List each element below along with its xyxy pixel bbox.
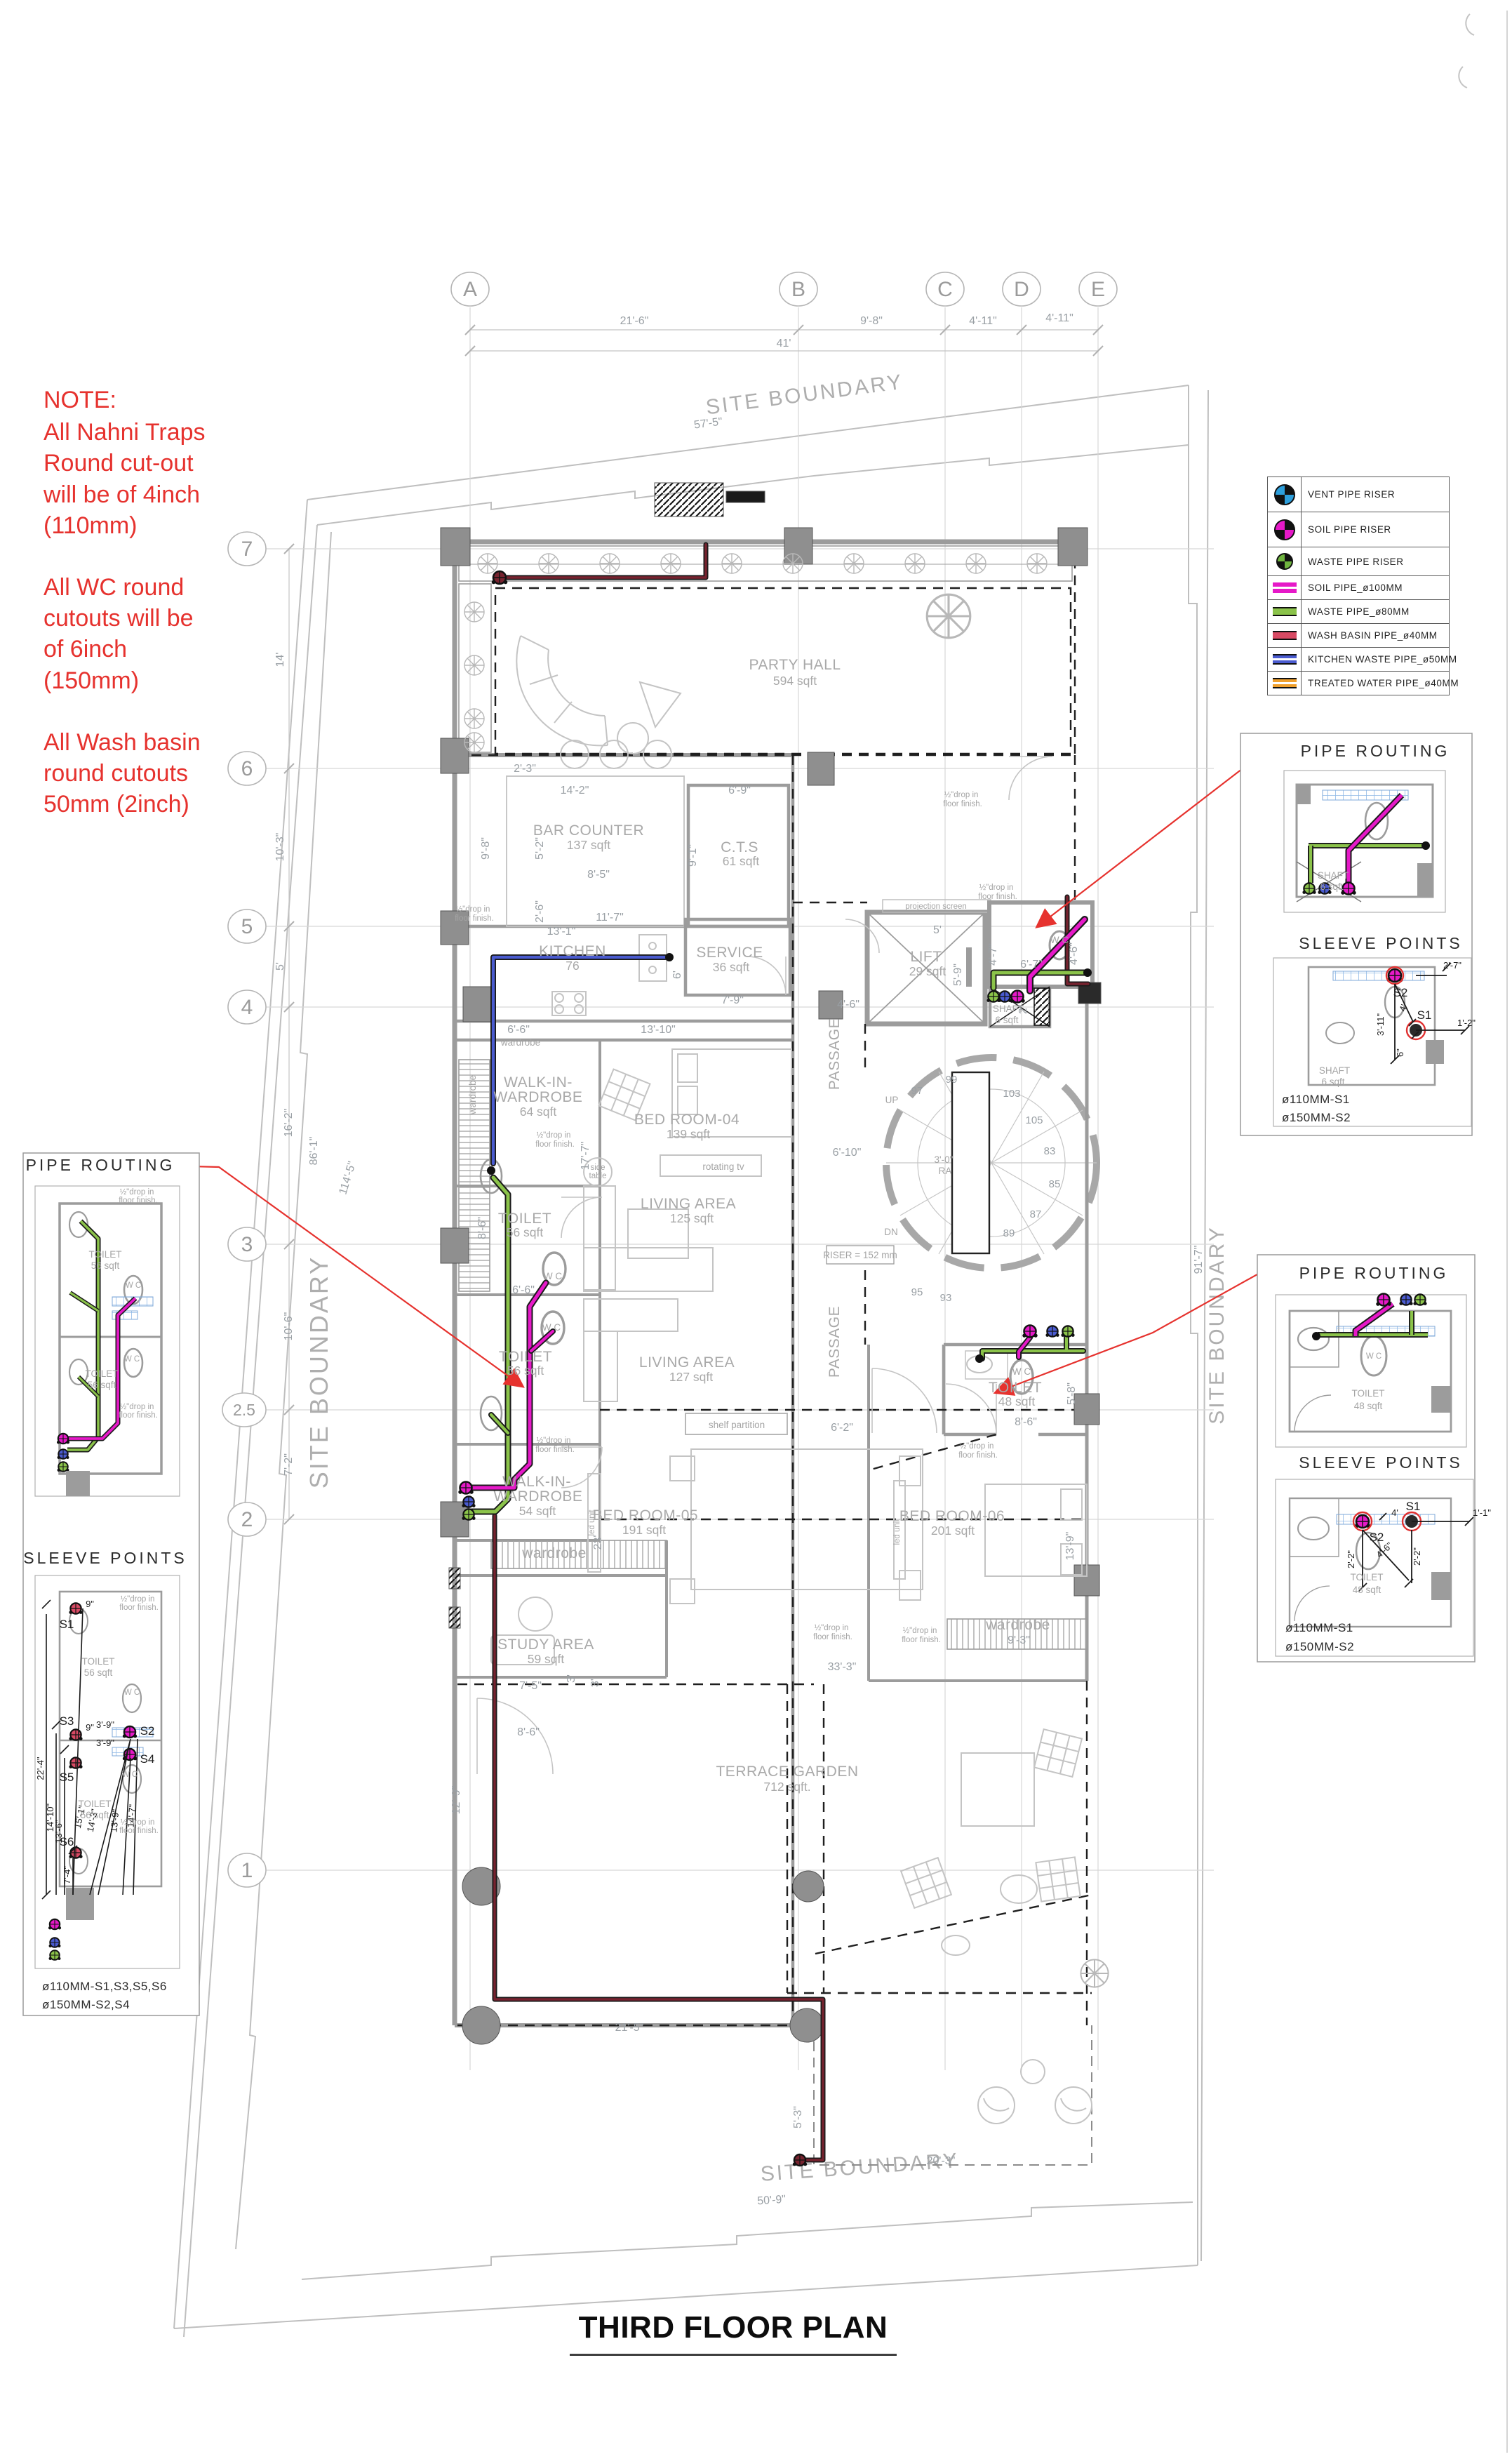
step-number: 85 xyxy=(1049,1178,1061,1190)
room-label: TOILET xyxy=(498,1211,551,1227)
room-label: LIFT xyxy=(910,949,942,965)
stair-up-label: UP xyxy=(885,1095,899,1105)
dim-label: 3'-11" xyxy=(1375,1013,1386,1037)
dim-label: 9'-8" xyxy=(860,315,883,327)
sleeve-size-note: ø110MM-S1 xyxy=(1285,1621,1353,1634)
room-label: TERRACE GARDEN xyxy=(716,1764,858,1780)
legend-row: SOIL PIPE RISER xyxy=(1268,512,1449,547)
detail-right-2: PIPE ROUTING W C TOILET 48 sqft SLEEVE P… xyxy=(1257,1255,1491,1662)
drop-note: ½"drop in xyxy=(537,1131,571,1140)
sleeve-size-note: ø110MM-S1,S3,S5,S6 xyxy=(42,1980,167,1993)
dim-label: 2'-3" xyxy=(514,763,536,775)
room-area: 56 sqft xyxy=(507,1225,544,1239)
dim-label: 2'-7" xyxy=(1443,960,1461,971)
drop-note: floor finish. xyxy=(943,800,982,808)
stair-radius-label: RA xyxy=(939,1166,952,1176)
vent-pipe-riser-icon xyxy=(462,1496,475,1507)
detail-room-label: TOILET xyxy=(88,1249,121,1260)
sleeve-size-note: ø110MM-S1 xyxy=(1282,1093,1350,1106)
dim-label: 5'-3" xyxy=(792,2106,804,2128)
wardrobe-label: wardrobe xyxy=(500,1037,540,1048)
grid-col-label: A xyxy=(463,278,477,301)
room-area: 6 sqft xyxy=(995,1015,1018,1025)
grid-row-label: 2.5 xyxy=(233,1401,255,1419)
legend-label: WASH BASIN PIPE_ø40MM xyxy=(1302,630,1438,641)
dim-label: 5'-2" xyxy=(534,837,546,860)
drop-note: ½"drop in xyxy=(944,791,979,799)
room-label: BED ROOM-06 xyxy=(899,1508,1005,1524)
soil-pipe-riser-icon xyxy=(1274,519,1295,540)
room-label: KITCHEN xyxy=(539,943,606,959)
room-area: 59 sqft xyxy=(528,1652,565,1666)
room-area: 76 xyxy=(566,959,579,973)
room-area: 64 sqft xyxy=(520,1105,557,1119)
site-boundary-left: SITE BOUNDARY xyxy=(305,1255,333,1488)
wardrobe-label: wardrobe xyxy=(985,1617,1050,1633)
kitchen-waste-pipe xyxy=(493,957,665,1164)
legend-label: SOIL PIPE RISER xyxy=(1302,524,1391,535)
drop-note: floor finish. xyxy=(455,914,494,923)
step-number: 95 xyxy=(911,1286,923,1298)
room-label: SERVICE xyxy=(696,945,763,961)
drop-note: ½"drop in xyxy=(120,1403,154,1411)
drop-note: ½"drop in xyxy=(815,1624,849,1632)
step-number: 105 xyxy=(1025,1114,1043,1126)
treated-water-pipe-icon xyxy=(1273,678,1297,688)
dim-label: 13'-6" xyxy=(53,1820,64,1844)
wc-label: W C xyxy=(1012,1366,1031,1377)
wc-label: W C xyxy=(542,1322,561,1333)
step-number: 99 xyxy=(946,1074,958,1086)
room-label: WALK-IN- xyxy=(504,1074,573,1091)
detail-heading: SLEEVE POINTS xyxy=(23,1549,187,1567)
detail-heading: SLEEVE POINTS xyxy=(1299,1453,1463,1472)
sleeve-size-note: ø150MM-S2,S4 xyxy=(42,1998,130,2011)
site-boundary-lines xyxy=(174,11,1507,2453)
grid-col-label: B xyxy=(791,278,805,301)
wardrobe-label: wardrobe xyxy=(467,1075,478,1115)
room-area: 36 sqft xyxy=(713,960,750,974)
dim-label: 5'-8" xyxy=(1066,1382,1078,1405)
floor-plan-drawing: A B C D E 7 6 5 4 3 2.5 2 1 21'-6" 9'-8"… xyxy=(0,0,1512,2459)
dim-label: 9" xyxy=(86,1599,94,1609)
waste-pipes-green xyxy=(471,973,1085,1512)
treated-water-riser-icon xyxy=(793,2154,807,2166)
room-label: BED ROOM-05 xyxy=(593,1507,698,1524)
dim-label: 2'-6" xyxy=(534,900,546,923)
dim-label: 8'-6" xyxy=(476,1217,488,1239)
drop-note: floor finish. xyxy=(958,1451,998,1460)
drop-note: floor finish. xyxy=(119,1197,158,1205)
kitchen-waste-pipe-icon xyxy=(1273,654,1297,665)
detail-left: PIPE ROUTING TOILET 56 sqft TOILET 56 sq… xyxy=(23,1153,199,2015)
dim-label: 6'-10" xyxy=(833,1147,862,1159)
shelf-partition-label: shelf partition xyxy=(709,1420,765,1430)
dim-label: 5' xyxy=(933,924,942,936)
dim-label: 3' xyxy=(589,1679,601,1687)
vent-pipe-riser-icon xyxy=(1045,1326,1059,1337)
dim-label: 13'-1" xyxy=(547,926,576,938)
legend-row: SOIL PIPE_ø100MM xyxy=(1268,575,1449,599)
drop-note: floor finish. xyxy=(119,1604,159,1612)
dim-label: 33'-3" xyxy=(828,1661,857,1673)
detail-shaft-area: 6 sqft xyxy=(1320,881,1343,892)
pipe-legend: VENT PIPE RISER SOIL PIPE RISER WASTE PI… xyxy=(1267,477,1450,695)
room-area: 201 sqft xyxy=(931,1524,975,1538)
room-label: BAR COUNTER xyxy=(533,822,644,839)
dim-label: 7'-5" xyxy=(519,1680,542,1692)
room-label: WARDROBE xyxy=(494,1089,583,1105)
passage-label: PASSAGE xyxy=(827,1018,843,1090)
dim-label: 12'-9" xyxy=(450,1786,462,1815)
waste-pipe-riser-icon xyxy=(1061,1326,1074,1337)
room-label: TOILET xyxy=(499,1349,552,1365)
legend-row: WASH BASIN PIPE_ø40MM xyxy=(1268,623,1449,647)
detail-room-label: TOILET xyxy=(78,1799,111,1809)
site-boundary-bottom-length: 50'-9" xyxy=(757,2194,787,2208)
step-number: 93 xyxy=(940,1292,952,1304)
room-area: 191 sqft xyxy=(622,1523,666,1537)
sink-fitting-icon xyxy=(665,953,674,961)
dim-label: 2'-2" xyxy=(1346,1550,1356,1568)
dim-label: 21'-6" xyxy=(620,315,649,327)
legend-label: WASTE PIPE_ø80MM xyxy=(1302,606,1410,617)
detail-room-area: 56 sqft xyxy=(84,1667,113,1678)
dim-label: 17'-7" xyxy=(580,1142,591,1171)
room-area: 125 sqft xyxy=(670,1211,714,1225)
dim-label: 4'-7" xyxy=(987,943,999,966)
site-boundary-left-diagonal: 114'-5" xyxy=(337,1160,358,1196)
note-paragraph: All Nahni Traps Round cut-out will be of… xyxy=(44,417,275,541)
dim-label: 13'-9" xyxy=(1064,1532,1076,1561)
dim-label: 4'-11" xyxy=(1045,312,1073,324)
dim-label: 11'-7" xyxy=(596,912,624,924)
sleeve-label: S4 xyxy=(140,1752,155,1766)
grid-row-label: 5 xyxy=(241,915,253,938)
sleeve-label: S2 xyxy=(1393,986,1408,999)
room-area: 56 sqft xyxy=(507,1364,544,1378)
detail-heading: PIPE ROUTING xyxy=(1301,742,1450,760)
sleeve-label: S1 xyxy=(1406,1500,1421,1513)
detail-right-1: PIPE ROUTING SHAFT 6 sqft SLEEVE POINTS … xyxy=(1240,733,1476,1135)
room-area: 139 sqft xyxy=(667,1127,710,1141)
site-boundary-top: SITE BOUNDARY xyxy=(704,371,904,420)
dim-label: 9" xyxy=(86,1722,94,1733)
detail-room-label: TOILET xyxy=(1351,1388,1384,1399)
wc-label: W C xyxy=(1050,935,1069,945)
dim-label: 6' xyxy=(671,971,683,979)
stair-radius-label: 3'-0" xyxy=(935,1154,954,1165)
dim-label: 9'-1" xyxy=(687,844,699,867)
dim-label: 1'-1" xyxy=(1473,1507,1491,1518)
dim-label: 6'-7" xyxy=(1020,959,1043,971)
drop-note: floor finish. xyxy=(978,893,1017,901)
wardrobe-label: wardrobe xyxy=(521,1545,587,1561)
basin-fitting-icon xyxy=(975,1354,984,1363)
dim-label: 7'-4" xyxy=(62,1866,72,1884)
room-label: LIVING AREA xyxy=(641,1196,736,1212)
pipe-fitting-icon xyxy=(1083,968,1092,977)
drop-note: floor finish. xyxy=(535,1446,575,1454)
dim-label: 4'-6" xyxy=(837,999,859,1011)
treated-water-riser-icon xyxy=(492,571,508,584)
legend-label: WASTE PIPE RISER xyxy=(1302,557,1404,567)
drop-note: floor finish. xyxy=(813,1633,852,1641)
dim-label: 8'-5" xyxy=(587,869,610,881)
dim-label: 6'-2" xyxy=(831,1422,853,1434)
detail-shaft-area: 6 sqft xyxy=(1321,1077,1344,1087)
dim-label: 5' xyxy=(274,962,286,971)
nahni-trap-note: NOTE: All Nahni Traps Round cut-out will… xyxy=(44,385,275,851)
wc-label: W C xyxy=(124,1355,140,1364)
planter-plants xyxy=(464,554,1047,752)
legend-row: WASTE PIPE_ø80MM xyxy=(1268,599,1449,623)
room-area: 127 sqft xyxy=(669,1370,713,1384)
grid-lines xyxy=(265,307,1214,2070)
detail-room-label: TOILET xyxy=(81,1656,114,1667)
detail-room-label: TOILET xyxy=(85,1368,118,1379)
stair-riser-note: RISER = 152 mm xyxy=(823,1250,897,1260)
step-number: 87 xyxy=(1030,1208,1042,1220)
sleeve-label: S2 xyxy=(1370,1531,1384,1544)
dim-label: 3'-9" xyxy=(96,1738,114,1748)
soil-pipe-riser-icon xyxy=(1010,990,1024,1002)
drop-note: ½"drop in xyxy=(121,1595,155,1604)
led-unit-label: led unit xyxy=(893,1519,902,1545)
room-area: 61 sqft xyxy=(723,854,760,868)
legend-row: WASTE PIPE RISER xyxy=(1268,547,1449,575)
dim-label: 9'-8" xyxy=(480,837,492,860)
room-label: STUDY AREA xyxy=(497,1637,594,1653)
drop-note: ½"drop in xyxy=(960,1442,994,1451)
grid-row-label: 3 xyxy=(241,1233,253,1256)
floor-plan-sheet: A B C D E 7 6 5 4 3 2.5 2 1 21'-6" 9'-8"… xyxy=(0,0,1512,2459)
detail-heading: SLEEVE POINTS xyxy=(1299,934,1463,952)
dim-label: 14'-2" xyxy=(561,785,589,797)
dim-label: 7'-9" xyxy=(721,994,744,1006)
drop-note: floor finish. xyxy=(119,1827,159,1835)
dim-label: 20'-3" xyxy=(927,2155,956,2167)
dim-label: 2'-2" xyxy=(1412,1547,1422,1566)
room-area: 48 sqft xyxy=(998,1394,1036,1408)
soil-pipe-line-icon xyxy=(1273,582,1297,593)
dim-label: 4' xyxy=(1391,1507,1398,1518)
room-area: 137 sqft xyxy=(567,838,610,852)
dim-label: 1'-2" xyxy=(1457,1018,1476,1028)
dim-label: 6'-6" xyxy=(507,1024,530,1036)
vent-pipe-riser-icon xyxy=(998,991,1011,1002)
sleeve-label: S2 xyxy=(140,1724,155,1738)
step-number: 89 xyxy=(1003,1227,1015,1239)
waste-pipe-riser-icon xyxy=(1276,553,1293,570)
waste-pipe-line-icon xyxy=(1273,607,1297,616)
dim-label: 21'-5" xyxy=(615,2022,644,2034)
drop-note: ½"drop in xyxy=(456,905,490,914)
dim-label: 4'-6" xyxy=(1068,942,1080,965)
detail-heading: PIPE ROUTING xyxy=(1299,1264,1449,1282)
drop-note: ½"drop in xyxy=(537,1437,571,1445)
dim-label: 41' xyxy=(777,338,791,349)
dim-label: 7'-2" xyxy=(283,1453,295,1476)
sleeve-label: S1 xyxy=(60,1618,74,1631)
sheet-title: THIRD FLOOR PLAN xyxy=(570,2310,897,2356)
dim-label: 14' xyxy=(274,653,286,667)
led-unit-label: led unit xyxy=(588,1510,596,1536)
room-label: WALK-IN- xyxy=(502,1474,571,1490)
detail-room-area: 48 sqft xyxy=(1353,1585,1381,1595)
dim-label: 22'-4" xyxy=(35,1757,46,1780)
soil-pipe-riser-icon xyxy=(458,1481,473,1493)
grid-col-label: E xyxy=(1091,278,1105,301)
vent-pipe-riser-icon xyxy=(1274,484,1295,505)
wash-basin-pipe-icon xyxy=(1273,631,1297,640)
detail-room-area: 48 sqft xyxy=(1354,1401,1383,1411)
dim-label: 10'-3" xyxy=(274,833,286,862)
detail-shaft-label: SHAFT xyxy=(1318,870,1349,881)
room-label: C.T.S xyxy=(721,839,758,855)
legend-label: TREATED WATER PIPE_ø40MM xyxy=(1302,678,1459,688)
detail-shaft-label: SHAFT xyxy=(1319,1065,1350,1076)
site-boundary-left-length: 86'-1" xyxy=(308,1137,320,1166)
room-label: PARTY HALL xyxy=(749,657,841,673)
projection-screen-label: projection screen xyxy=(905,902,967,911)
dim-label: 13'-10" xyxy=(641,1024,676,1036)
grid-row-label: 1 xyxy=(241,1859,253,1882)
legend-label: VENT PIPE RISER xyxy=(1302,489,1395,500)
dim-label: 3'-9" xyxy=(96,1719,114,1730)
columns xyxy=(441,483,1101,2044)
dim-label: 3' xyxy=(566,1674,577,1683)
stair-dn-label: DN xyxy=(884,1227,898,1237)
dim-label: 9'-3" xyxy=(1008,1634,1030,1646)
sleeve-label: S3 xyxy=(60,1714,74,1728)
step-number: 103 xyxy=(1003,1088,1020,1100)
drop-note: ½"drop in xyxy=(903,1627,937,1635)
drop-note: floor finish. xyxy=(119,1411,158,1420)
drop-note: ½"drop in xyxy=(120,1188,154,1197)
wc-label: W C xyxy=(126,1281,141,1290)
drop-note: floor finish. xyxy=(535,1140,575,1149)
detail-room-area: 56 sqft xyxy=(91,1260,120,1271)
room-label: BED ROOM-04 xyxy=(634,1112,740,1128)
sleeve-label: S5 xyxy=(60,1771,74,1784)
dim-label: 23' xyxy=(592,1535,604,1550)
room-area: 594 sqft xyxy=(773,674,817,688)
side-table-label: table xyxy=(589,1172,607,1180)
dim-label: 5'-9" xyxy=(952,964,964,986)
wc-label: W C xyxy=(544,1271,562,1281)
dim-label: 6'-9" xyxy=(728,785,751,797)
dim-label: 4'-11" xyxy=(969,315,997,327)
grid-col-label: C xyxy=(937,278,953,301)
legend-label: KITCHEN WASTE PIPE_ø50MM xyxy=(1302,654,1457,665)
detail-room-label: TOILET xyxy=(1350,1572,1383,1582)
note-heading: NOTE: xyxy=(44,385,275,415)
dim-label: 2' xyxy=(1017,1006,1029,1014)
grid-row-label: 4 xyxy=(241,996,253,1019)
basin-fitting-icon xyxy=(487,1166,495,1175)
legend-row: VENT PIPE RISER xyxy=(1268,477,1449,512)
sleeve-label: S1 xyxy=(1417,1008,1432,1022)
drop-note: floor finish. xyxy=(902,1636,941,1644)
site-boundary-labels: SITE BOUNDARY 57'-5" SITE BOUNDARY 86'-1… xyxy=(305,371,1229,2208)
sleeve-size-note: ø150MM-S2 xyxy=(1285,1640,1354,1653)
room-area: 29 sqft xyxy=(909,964,946,978)
grid-row-label: 2 xyxy=(241,1508,253,1531)
legend-label: SOIL PIPE_ø100MM xyxy=(1302,582,1403,593)
side-table-label: side xyxy=(590,1164,605,1172)
dim-label: 6" xyxy=(1395,1048,1405,1057)
room-area: 712 sqft. xyxy=(763,1780,810,1794)
waste-pipe-riser-icon xyxy=(462,1509,475,1520)
wc-label: W C xyxy=(1366,1352,1381,1361)
site-boundary-right: SITE BOUNDARY xyxy=(1205,1225,1229,1425)
wc-label: W C xyxy=(122,1771,138,1779)
site-boundary-top-length: 57'-5" xyxy=(693,415,723,431)
dim-label: 6'-6" xyxy=(512,1284,535,1296)
step-number: 83 xyxy=(1044,1145,1056,1157)
legend-row: TREATED WATER PIPE_ø40MM xyxy=(1268,671,1449,695)
note-paragraph: All WC round cutouts will be of 6inch (1… xyxy=(44,572,275,696)
step-number: 97 xyxy=(911,1085,923,1097)
room-area: 54 sqft xyxy=(519,1504,556,1518)
dim-label: 8'-6" xyxy=(1015,1416,1037,1428)
room-label: WARDROBE xyxy=(494,1488,583,1505)
site-boundary-right-length: 91'-7" xyxy=(1193,1246,1205,1274)
rotating-tv-label: rotating tv xyxy=(702,1161,744,1172)
room-label: TOILET xyxy=(989,1380,1042,1396)
wc-label: W C xyxy=(124,1688,140,1697)
legend-row: KITCHEN WASTE PIPE_ø50MM xyxy=(1268,647,1449,671)
room-label: LIVING AREA xyxy=(639,1354,735,1371)
sleeve-size-note: ø150MM-S2 xyxy=(1282,1111,1351,1124)
detail-heading: PIPE ROUTING xyxy=(26,1156,175,1174)
soil-pipe-riser-icon xyxy=(1022,1325,1037,1337)
note-paragraph: All Wash basin round cutouts 50mm (2inch… xyxy=(44,727,275,820)
grid-col-label: D xyxy=(1014,278,1029,301)
passage-label: PASSAGE xyxy=(827,1306,843,1378)
dim-label: 10'-6" xyxy=(283,1312,295,1341)
detail-room-area: 56 sqft xyxy=(88,1380,116,1390)
riser-symbols xyxy=(458,571,1092,2166)
drop-note: ½"drop in xyxy=(121,1818,155,1827)
detail-room-area: 56 sqft xyxy=(81,1810,109,1820)
dim-label: 16'-2" xyxy=(283,1109,295,1138)
drop-note: ½"drop in xyxy=(979,884,1014,892)
dim-label: 8'-6" xyxy=(517,1726,540,1738)
